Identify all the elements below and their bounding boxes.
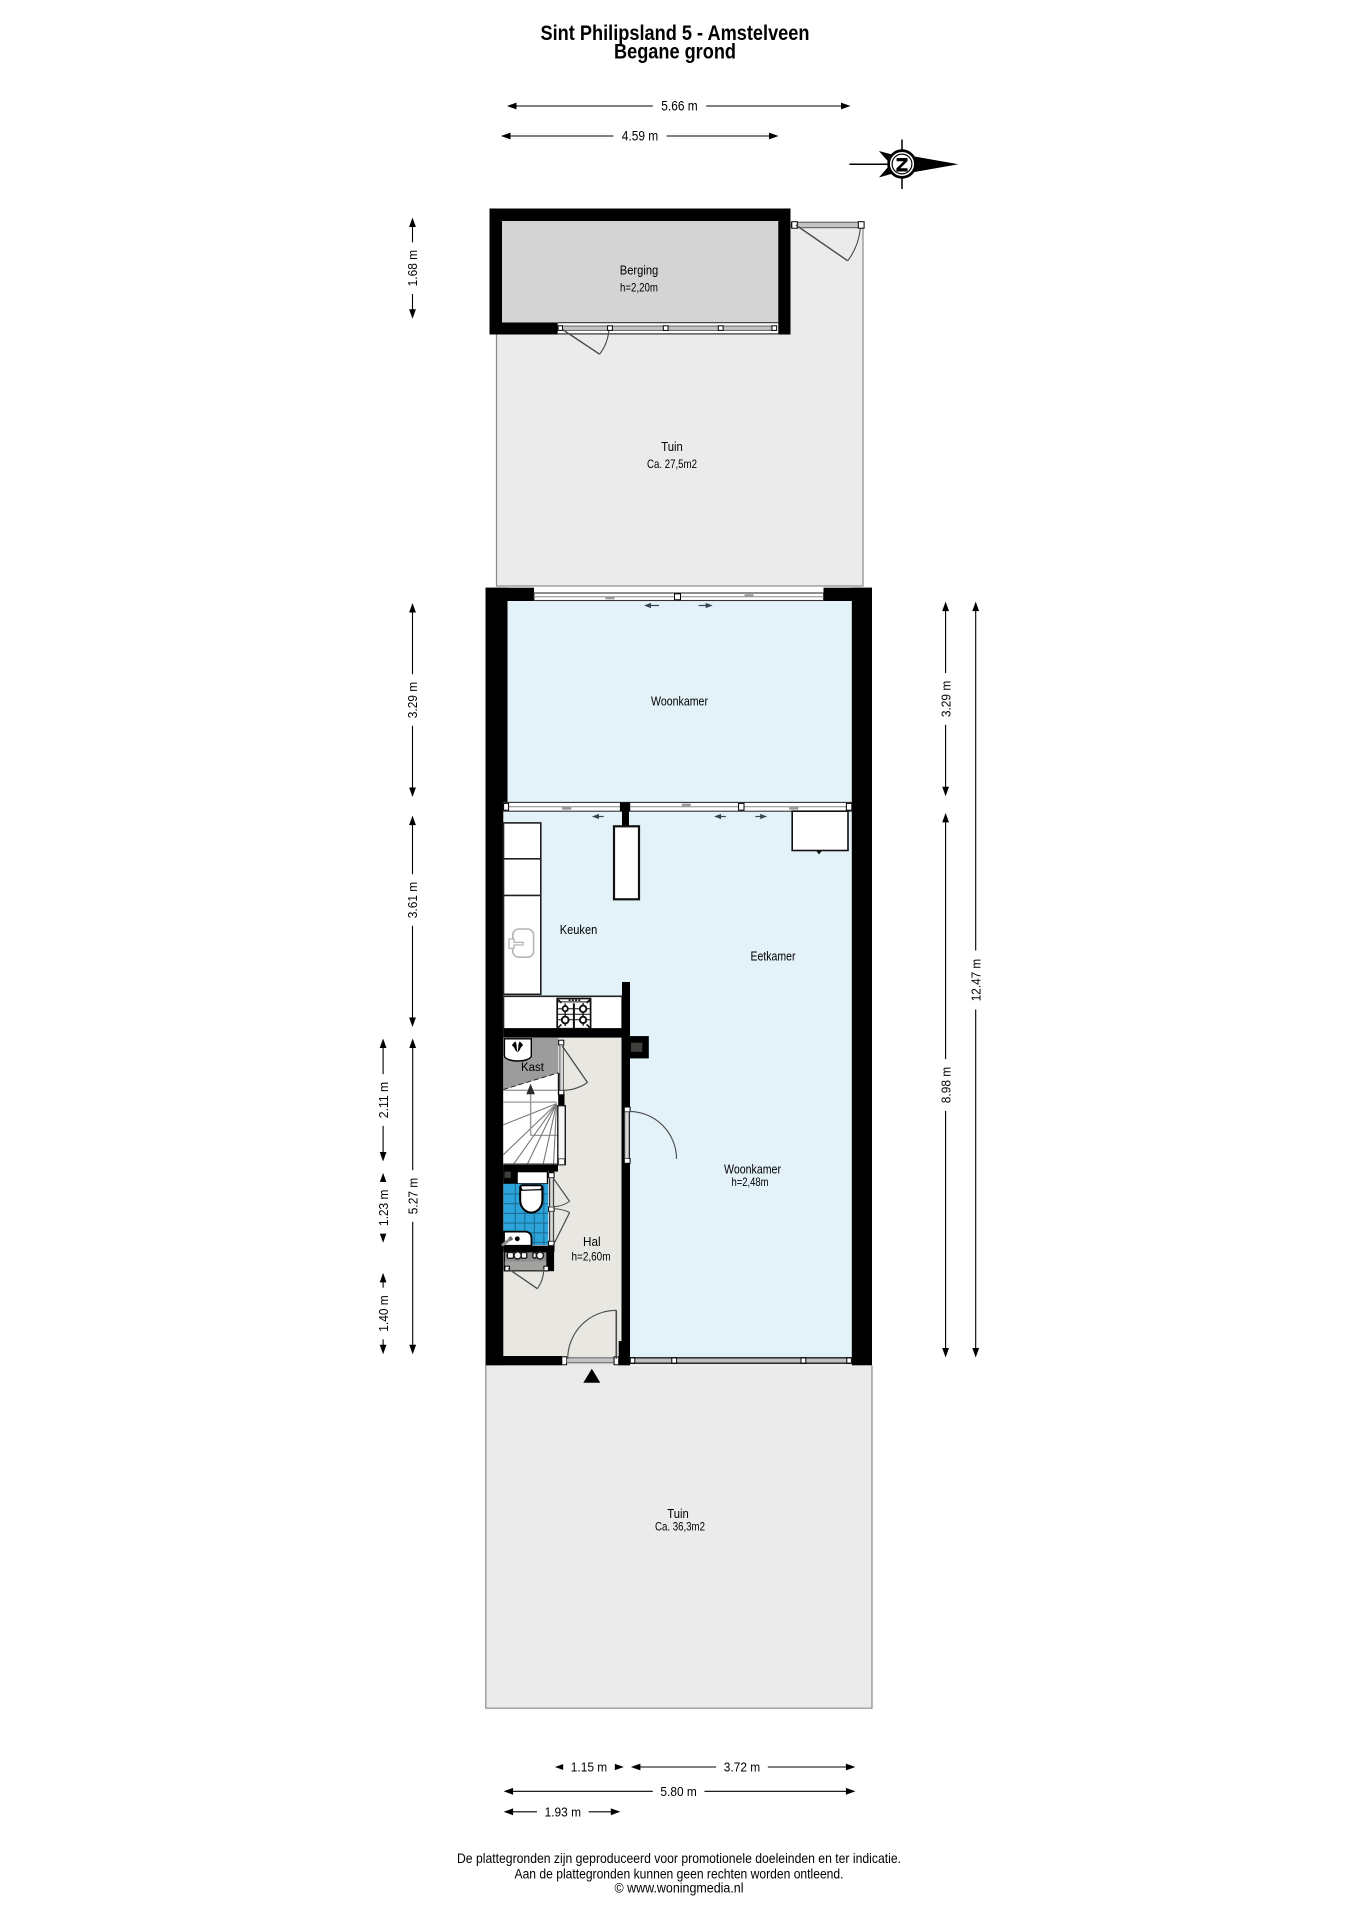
svg-text:8.98 m: 8.98 m [938,1067,953,1103]
svg-text:1.40 m: 1.40 m [376,1295,391,1331]
svg-text:Ca. 27,5m2: Ca. 27,5m2 [647,457,697,471]
svg-text:© www.woningmedia.nl: © www.woningmedia.nl [615,1880,744,1896]
svg-text:Berging: Berging [620,264,659,278]
svg-text:4.59 m: 4.59 m [622,129,658,144]
svg-text:De plattegronden zijn geproduc: De plattegronden zijn geproduceerd voor … [457,1850,901,1866]
svg-text:5.27 m: 5.27 m [405,1178,420,1214]
svg-text:5.80 m: 5.80 m [660,1784,696,1799]
svg-text:12.47 m: 12.47 m [968,959,983,1002]
svg-text:Keuken: Keuken [560,923,598,937]
svg-text:Eetkamer: Eetkamer [751,950,796,964]
svg-text:Hal: Hal [583,1235,601,1249]
svg-text:1.68 m: 1.68 m [405,250,420,286]
svg-text:1.93 m: 1.93 m [545,1805,581,1820]
svg-text:Tuin: Tuin [661,440,683,454]
svg-text:Kast: Kast [521,1062,545,1074]
svg-text:h=2,60m: h=2,60m [572,1250,611,1264]
svg-text:2.11 m: 2.11 m [376,1082,391,1118]
svg-text:Woonkamer: Woonkamer [651,695,708,709]
svg-text:5.66 m: 5.66 m [661,99,697,114]
svg-text:3.72 m: 3.72 m [724,1760,760,1775]
svg-text:1.15 m: 1.15 m [571,1760,607,1775]
svg-text:3.29 m: 3.29 m [405,682,420,718]
svg-text:h=2,48m: h=2,48m [732,1175,769,1189]
svg-text:3.61 m: 3.61 m [405,882,420,918]
svg-text:Ca. 36,3m2: Ca. 36,3m2 [655,1520,705,1534]
svg-text:Begane grond: Begane grond [614,41,736,64]
svg-text:1.23 m: 1.23 m [376,1190,391,1226]
svg-text:h=2,20m: h=2,20m [620,281,658,295]
svg-text:3.29 m: 3.29 m [938,681,953,717]
